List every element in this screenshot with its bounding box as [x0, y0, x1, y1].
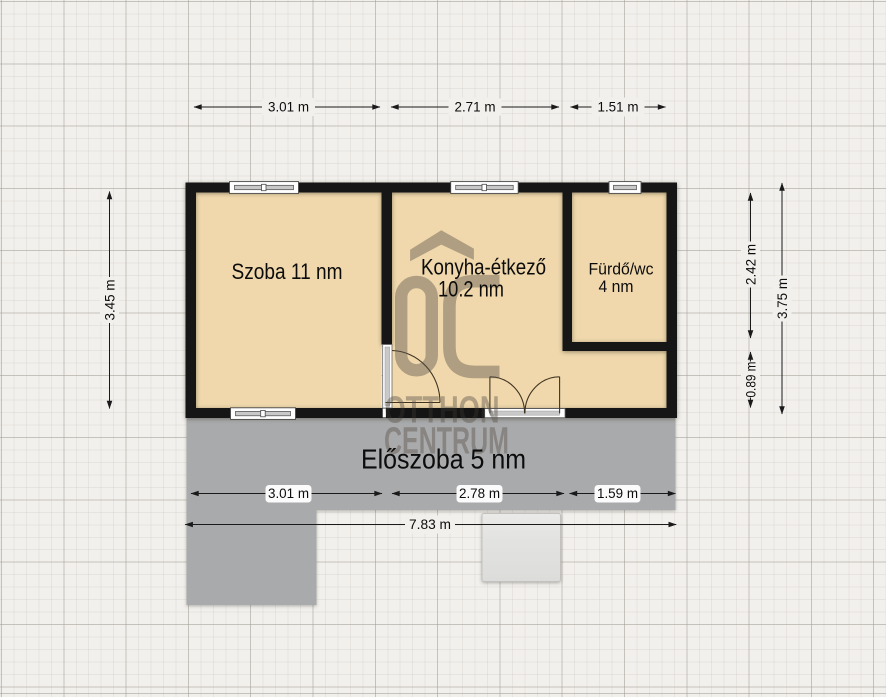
svg-text:2.42 m: 2.42 m: [743, 244, 758, 285]
svg-text:Fürdő/wc: Fürdő/wc: [589, 259, 654, 278]
svg-text:1.59 m: 1.59 m: [597, 486, 638, 501]
svg-text:2.71 m: 2.71 m: [455, 100, 496, 115]
svg-text:4 nm: 4 nm: [599, 277, 634, 296]
svg-text:Előszoba 5 nm: Előszoba 5 nm: [361, 444, 526, 475]
svg-text:2.78 m: 2.78 m: [459, 486, 500, 501]
svg-text:3.01 m: 3.01 m: [268, 100, 309, 115]
svg-text:7.83 m: 7.83 m: [409, 517, 451, 532]
svg-text:0.89 m: 0.89 m: [743, 362, 758, 398]
svg-text:10.2 nm: 10.2 nm: [438, 277, 504, 302]
svg-text:3.45 m: 3.45 m: [102, 280, 117, 321]
svg-text:3.01 m: 3.01 m: [268, 486, 309, 501]
svg-text:3.75 m: 3.75 m: [775, 278, 790, 319]
svg-text:Szoba 11 nm: Szoba 11 nm: [232, 259, 343, 284]
svg-text:1.51 m: 1.51 m: [598, 100, 639, 115]
